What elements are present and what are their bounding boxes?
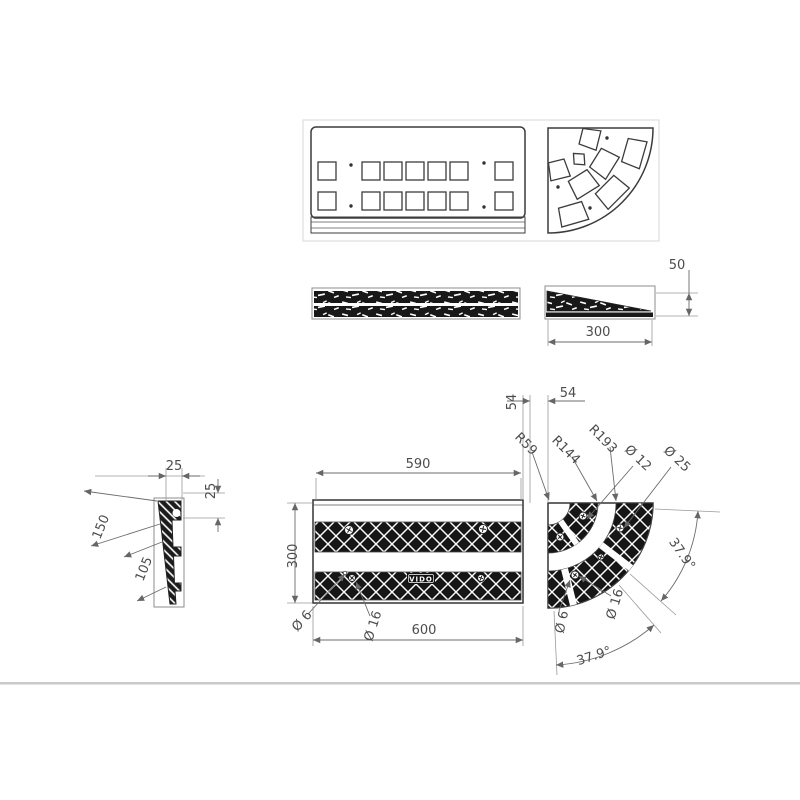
- ramp-toe-strip: [311, 217, 525, 233]
- angle-ray: [630, 574, 676, 615]
- front-rubber-band: [314, 291, 518, 303]
- fixing-hole: [482, 161, 485, 164]
- tread-square: [362, 192, 380, 210]
- callout-corner-dia6: Ø 6: [553, 609, 572, 634]
- brand-plate: VIDO: [407, 573, 435, 584]
- top-view-corner-ramp: [547, 127, 653, 233]
- top-view-group: [303, 120, 659, 241]
- page-divider: [0, 682, 800, 685]
- callout-r144: R144: [548, 433, 583, 468]
- fixing-hole: [556, 185, 559, 188]
- screw: [478, 575, 485, 582]
- front-view-straight-ramp: [312, 288, 520, 319]
- base-plate: [546, 313, 653, 318]
- dim-height-50: 50: [656, 258, 698, 316]
- angle-ray: [655, 509, 720, 512]
- tread-square: [450, 192, 468, 210]
- tread-square: [495, 192, 513, 210]
- callout-r193: R193: [585, 422, 620, 457]
- dim-label-590: 590: [406, 457, 431, 472]
- tread-square: [428, 162, 446, 180]
- tread-square: [406, 192, 424, 210]
- screw: [345, 526, 354, 535]
- tread-square: [362, 162, 380, 180]
- callout-plan-dia16: Ø 16: [362, 609, 386, 643]
- dim-label-300-plan: 300: [286, 544, 301, 569]
- oblique-dim-line: [124, 542, 162, 557]
- dim-label-600: 600: [412, 623, 437, 638]
- plan-view-straight-ramp: VIDO 590 600 300 Ø 6 Ø 16: [286, 457, 523, 646]
- drawing-page: 50 300 25 25 150 105: [0, 0, 800, 800]
- screw: [616, 524, 624, 532]
- tread-square: [406, 162, 424, 180]
- screw: [598, 554, 604, 560]
- leader-line: [532, 452, 549, 500]
- fixing-hole: [605, 136, 608, 139]
- brand-logo-text: VIDO: [409, 576, 433, 584]
- section-view: 25 25 150 105: [84, 459, 225, 607]
- callout-dia12: Ø 12: [621, 442, 654, 474]
- screw: [579, 512, 587, 520]
- front-rubber-band: [314, 306, 518, 317]
- tread-square: [428, 192, 446, 210]
- dim-label-section-side: 25: [204, 483, 219, 500]
- screw-counterbore: [173, 509, 181, 517]
- plan-view-corner-ramp: 54 54 R59 R144 R193 Ø 12 Ø 25 Ø 16 Ø 6 3…: [505, 386, 720, 675]
- callout-dia25: Ø 25: [660, 443, 693, 475]
- dim-wedge-depth-300: 300: [548, 320, 652, 346]
- fixing-hole: [349, 204, 352, 207]
- tread-square: [384, 192, 402, 210]
- screw: [349, 575, 356, 582]
- dim-label-depth: 300: [586, 325, 611, 340]
- tread-square: [450, 162, 468, 180]
- screw: [479, 525, 488, 534]
- dim-label-angle-bottom: 37.9°: [575, 644, 613, 669]
- dim-label-150: 150: [90, 513, 113, 542]
- dim-label-section-top: 25: [166, 459, 183, 474]
- tread-square: [384, 162, 402, 180]
- top-view-straight-ramp: [311, 127, 525, 233]
- fixing-hole: [588, 206, 591, 209]
- dim-label-105: 105: [133, 555, 156, 584]
- dim-label-54-horizontal: 54: [560, 386, 577, 401]
- callout-corner-dia16: Ø 16: [604, 587, 627, 621]
- tread-square: [318, 192, 336, 210]
- callout-r59: R59: [511, 430, 540, 459]
- oblique-dim-line: [84, 491, 157, 501]
- engineering-drawing-canvas: 50 300 25 25 150 105: [0, 0, 800, 800]
- tread-square: [495, 162, 513, 180]
- callout-plan-dia6: Ø 6: [289, 608, 315, 635]
- side-view-wedge: [545, 286, 655, 319]
- oblique-dim-line: [137, 587, 166, 601]
- elevation-group: 50 300: [312, 258, 698, 346]
- fixing-hole: [349, 163, 352, 166]
- leader-line: [610, 447, 616, 501]
- dim-label-height: 50: [669, 258, 686, 273]
- fixing-hole: [482, 205, 485, 208]
- angle-ray: [619, 585, 661, 633]
- tread-square: [318, 162, 336, 180]
- screw: [571, 571, 579, 579]
- screw: [556, 533, 564, 541]
- wedge-profile: [547, 291, 651, 311]
- dim-label-54-vertical: 54: [505, 394, 520, 411]
